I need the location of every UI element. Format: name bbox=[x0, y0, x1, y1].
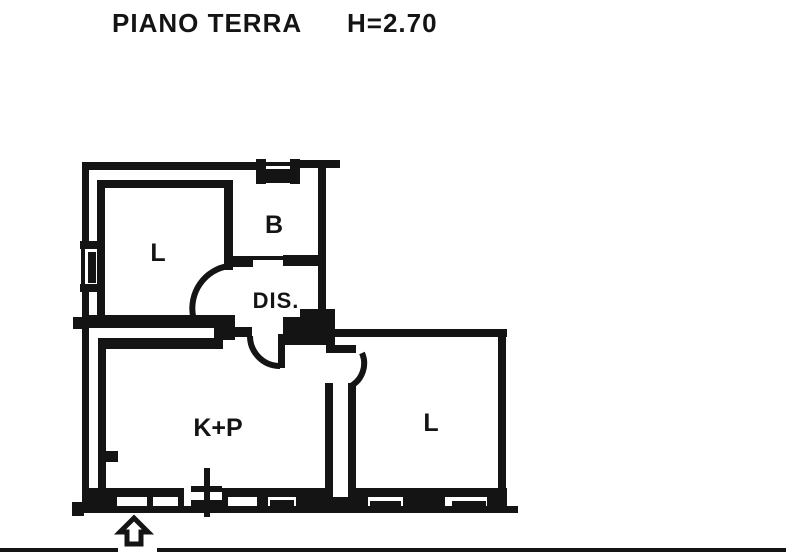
floor-plan-page: PIANO TERRA H=2.70 bbox=[0, 0, 786, 554]
wall-bathroom-hallway bbox=[224, 255, 326, 267]
room-label-hallway: DIS. bbox=[253, 288, 300, 313]
room-label-kitchen: K+P bbox=[193, 414, 242, 442]
door-hallway-kitchen bbox=[250, 334, 285, 368]
bottom-windows bbox=[72, 497, 518, 516]
room-label-living-right: L bbox=[423, 409, 438, 437]
door-arc-living-right bbox=[351, 353, 364, 386]
door-arc-living-hallway bbox=[192, 266, 228, 316]
window-top-icon bbox=[256, 159, 300, 184]
bottom-walls bbox=[82, 488, 507, 497]
floor-plan-drawing: PIANO TERRA H=2.70 bbox=[0, 0, 786, 554]
page-title: PIANO TERRA bbox=[112, 8, 302, 38]
room-label-bathroom: B bbox=[265, 211, 283, 239]
room-label-living-upper: L bbox=[150, 239, 165, 267]
entrance-arrow-icon bbox=[120, 518, 148, 544]
room-living-right-walls bbox=[326, 309, 507, 497]
scan-edge-line bbox=[0, 548, 786, 552]
ceiling-height-label: H=2.70 bbox=[347, 8, 438, 38]
